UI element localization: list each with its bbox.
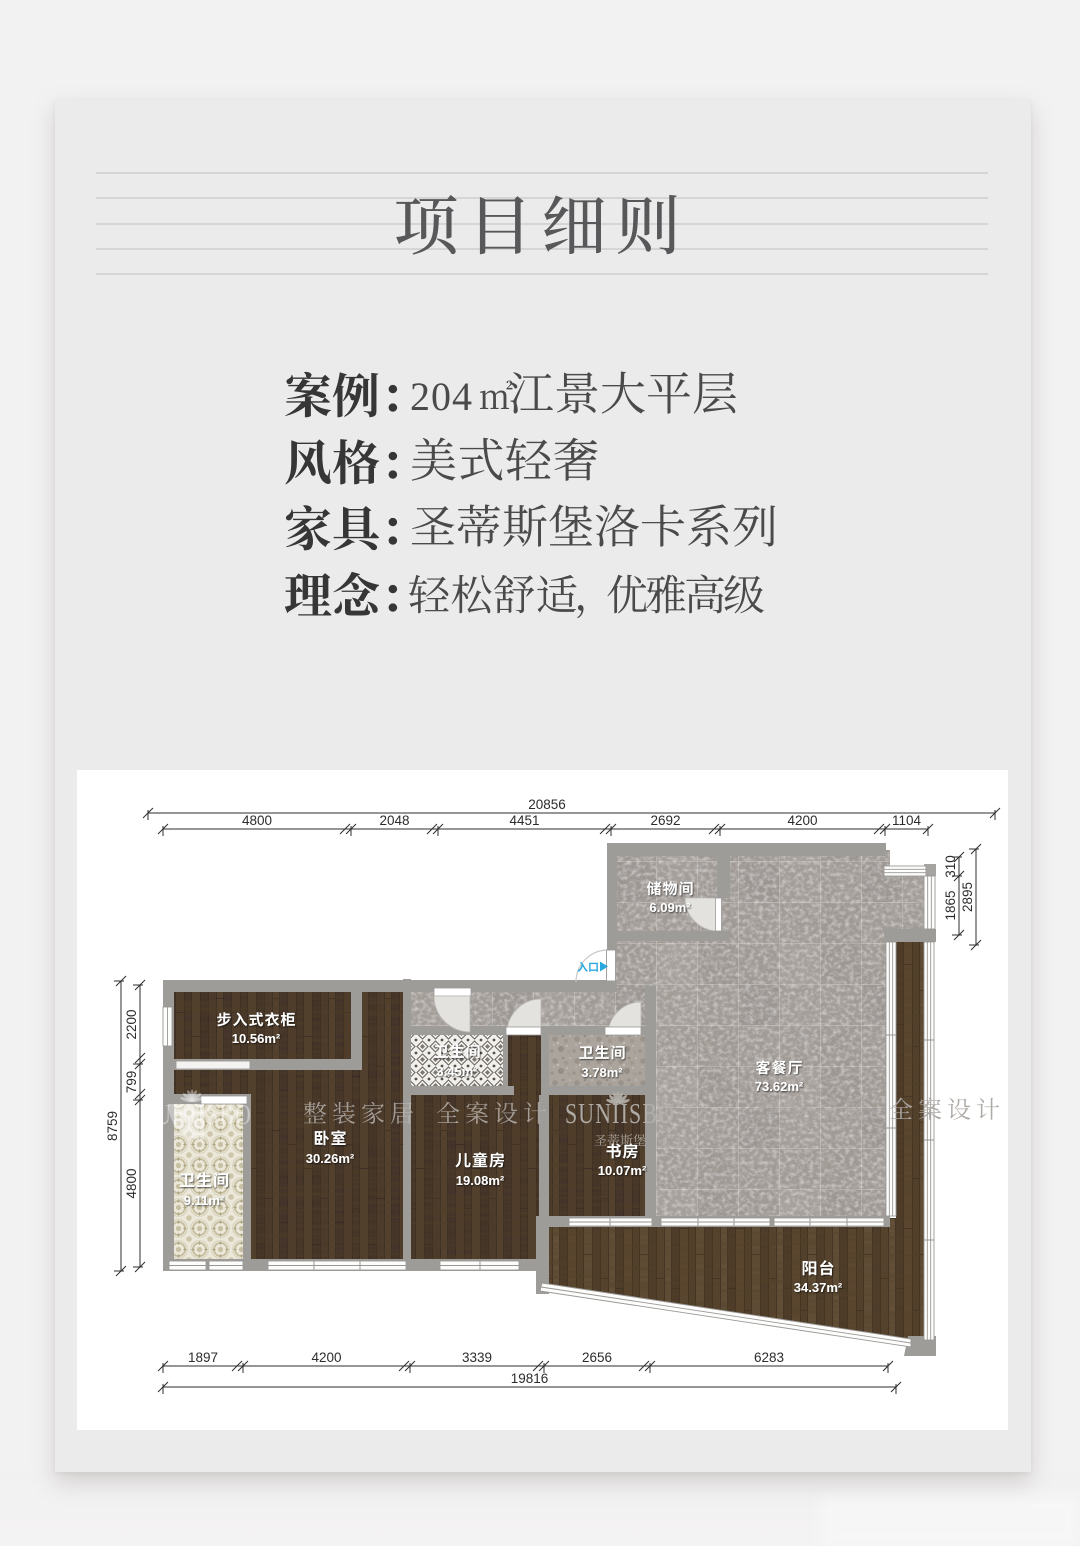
svg-text:73.62m²: 73.62m² <box>755 1079 804 1094</box>
svg-text:4800: 4800 <box>124 1168 139 1198</box>
svg-text:204: 204 <box>410 374 473 419</box>
svg-text:310: 310 <box>943 855 958 878</box>
svg-text:6283: 6283 <box>754 1350 784 1365</box>
svg-text:2692: 2692 <box>650 813 680 828</box>
svg-text:SUNIISBO: SUNIISBO <box>565 1100 675 1130</box>
svg-text:4451: 4451 <box>509 813 539 828</box>
svg-text:799: 799 <box>124 1071 139 1094</box>
svg-text:6.09m²: 6.09m² <box>649 900 691 915</box>
svg-text:1897: 1897 <box>188 1350 218 1365</box>
svg-text:30.26m²: 30.26m² <box>306 1151 355 1166</box>
svg-text:SUNIISBO: SUNIISBO <box>142 1101 252 1131</box>
svg-text:3339: 3339 <box>462 1350 492 1365</box>
svg-text:20856: 20856 <box>528 797 566 812</box>
svg-text:1104: 1104 <box>892 813 922 828</box>
svg-text:10.56m²: 10.56m² <box>232 1031 281 1046</box>
svg-text:9.11m²: 9.11m² <box>184 1193 225 1208</box>
svg-text:34.37m²: 34.37m² <box>794 1280 843 1295</box>
svg-text:2895: 2895 <box>960 882 975 912</box>
svg-text:4200: 4200 <box>311 1350 341 1365</box>
svg-text:2048: 2048 <box>379 813 409 828</box>
svg-text:19.08m²: 19.08m² <box>456 1173 505 1188</box>
svg-text:1865: 1865 <box>943 890 958 920</box>
svg-text:2656: 2656 <box>582 1350 612 1365</box>
svg-text:3.45m²: 3.45m² <box>436 1064 478 1079</box>
svg-text:19816: 19816 <box>511 1371 549 1386</box>
svg-text:10.07m²: 10.07m² <box>598 1163 647 1178</box>
svg-text:3.78m²: 3.78m² <box>581 1065 623 1080</box>
svg-text:2200: 2200 <box>124 1009 139 1039</box>
svg-text:4200: 4200 <box>787 813 817 828</box>
svg-text:8759: 8759 <box>105 1111 120 1141</box>
svg-text:4800: 4800 <box>242 813 272 828</box>
